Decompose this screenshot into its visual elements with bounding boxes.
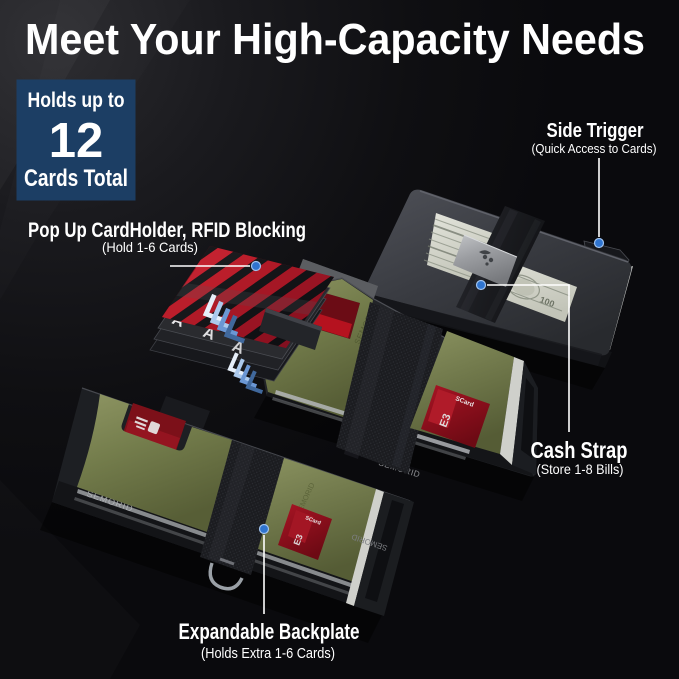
svg-text:12: 12: [49, 114, 104, 168]
svg-text:Cash Strap: Cash Strap: [531, 437, 628, 463]
svg-text:(Hold 1-6 Cards): (Hold 1-6 Cards): [102, 239, 198, 255]
svg-text:Cards Total: Cards Total: [24, 165, 128, 192]
svg-text:(Quick Access to Cards): (Quick Access to Cards): [532, 142, 657, 156]
svg-text:Holds up to: Holds up to: [28, 89, 125, 112]
svg-text:Meet Your High-Capacity Needs: Meet Your High-Capacity Needs: [25, 15, 645, 64]
svg-text:Side Trigger: Side Trigger: [547, 120, 644, 142]
svg-text:(Store 1-8 Bills): (Store 1-8 Bills): [537, 461, 624, 477]
svg-text:Expandable Backplate: Expandable Backplate: [179, 619, 360, 644]
svg-text:(Holds Extra 1-6 Cards): (Holds Extra 1-6 Cards): [201, 645, 335, 662]
